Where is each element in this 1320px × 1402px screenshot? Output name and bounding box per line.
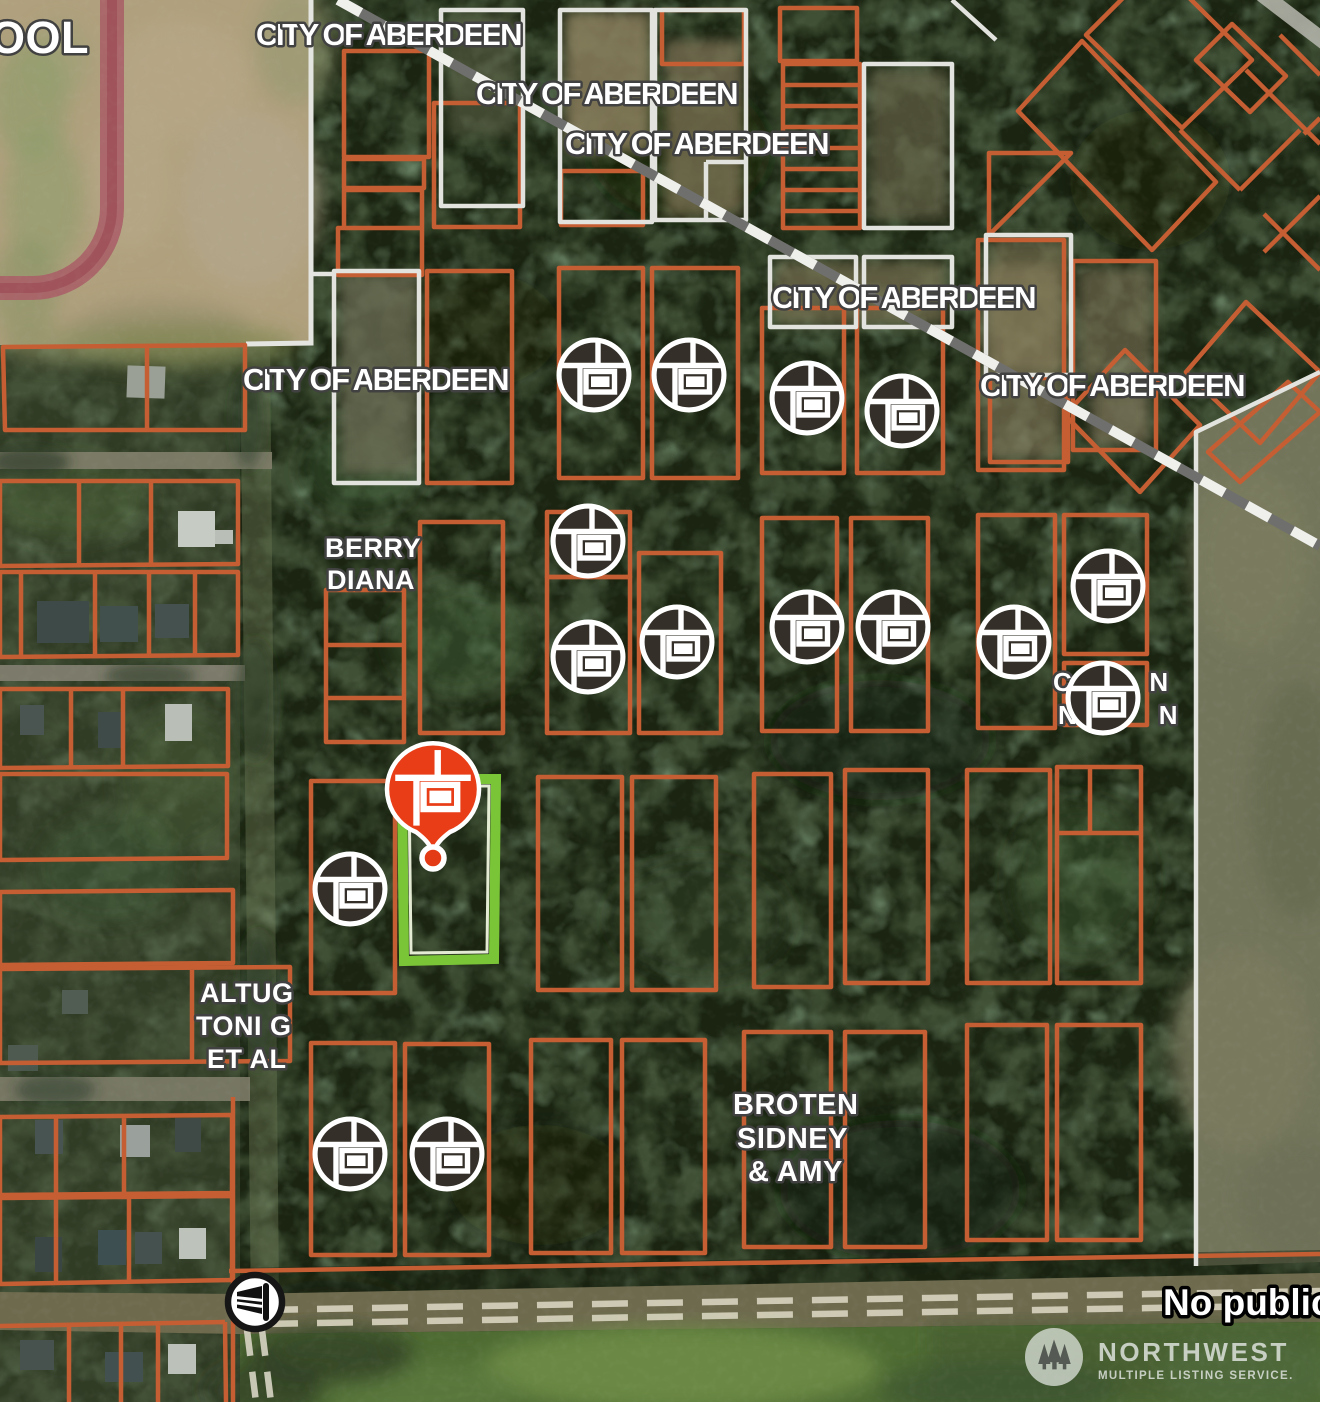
svg-text:CITY OF ABERDEEN: CITY OF ABERDEEN	[476, 76, 739, 111]
svg-text:TONI G: TONI G	[196, 1011, 292, 1041]
svg-text:SIDNEY: SIDNEY	[737, 1123, 848, 1155]
svg-text:& AMY: & AMY	[748, 1156, 843, 1188]
svg-text:NORTHWEST: NORTHWEST	[1098, 1337, 1289, 1367]
svg-text:CITY OF ABERDEEN: CITY OF ABERDEEN	[772, 280, 1037, 315]
svg-text:DIANA: DIANA	[327, 565, 415, 595]
svg-text:MULTIPLE LISTING SERVICE.: MULTIPLE LISTING SERVICE.	[1098, 1370, 1294, 1382]
svg-text:No public: No public	[1163, 1282, 1320, 1323]
svg-text:OOL: OOL	[0, 12, 89, 63]
svg-text:CITY OF ABERDEEN: CITY OF ABERDEEN	[243, 362, 510, 397]
svg-text:CITY OF ABERDEEN: CITY OF ABERDEEN	[980, 368, 1246, 403]
svg-text:CITY OF ABERDEEN: CITY OF ABERDEEN	[256, 17, 523, 52]
svg-text:ET AL: ET AL	[207, 1044, 287, 1074]
svg-text:CITY OF ABERDEEN: CITY OF ABERDEEN	[565, 126, 830, 161]
svg-text:BROTEN: BROTEN	[733, 1089, 858, 1121]
svg-text:ALTUG: ALTUG	[200, 978, 293, 1008]
svg-text:BERRY: BERRY	[325, 533, 421, 563]
